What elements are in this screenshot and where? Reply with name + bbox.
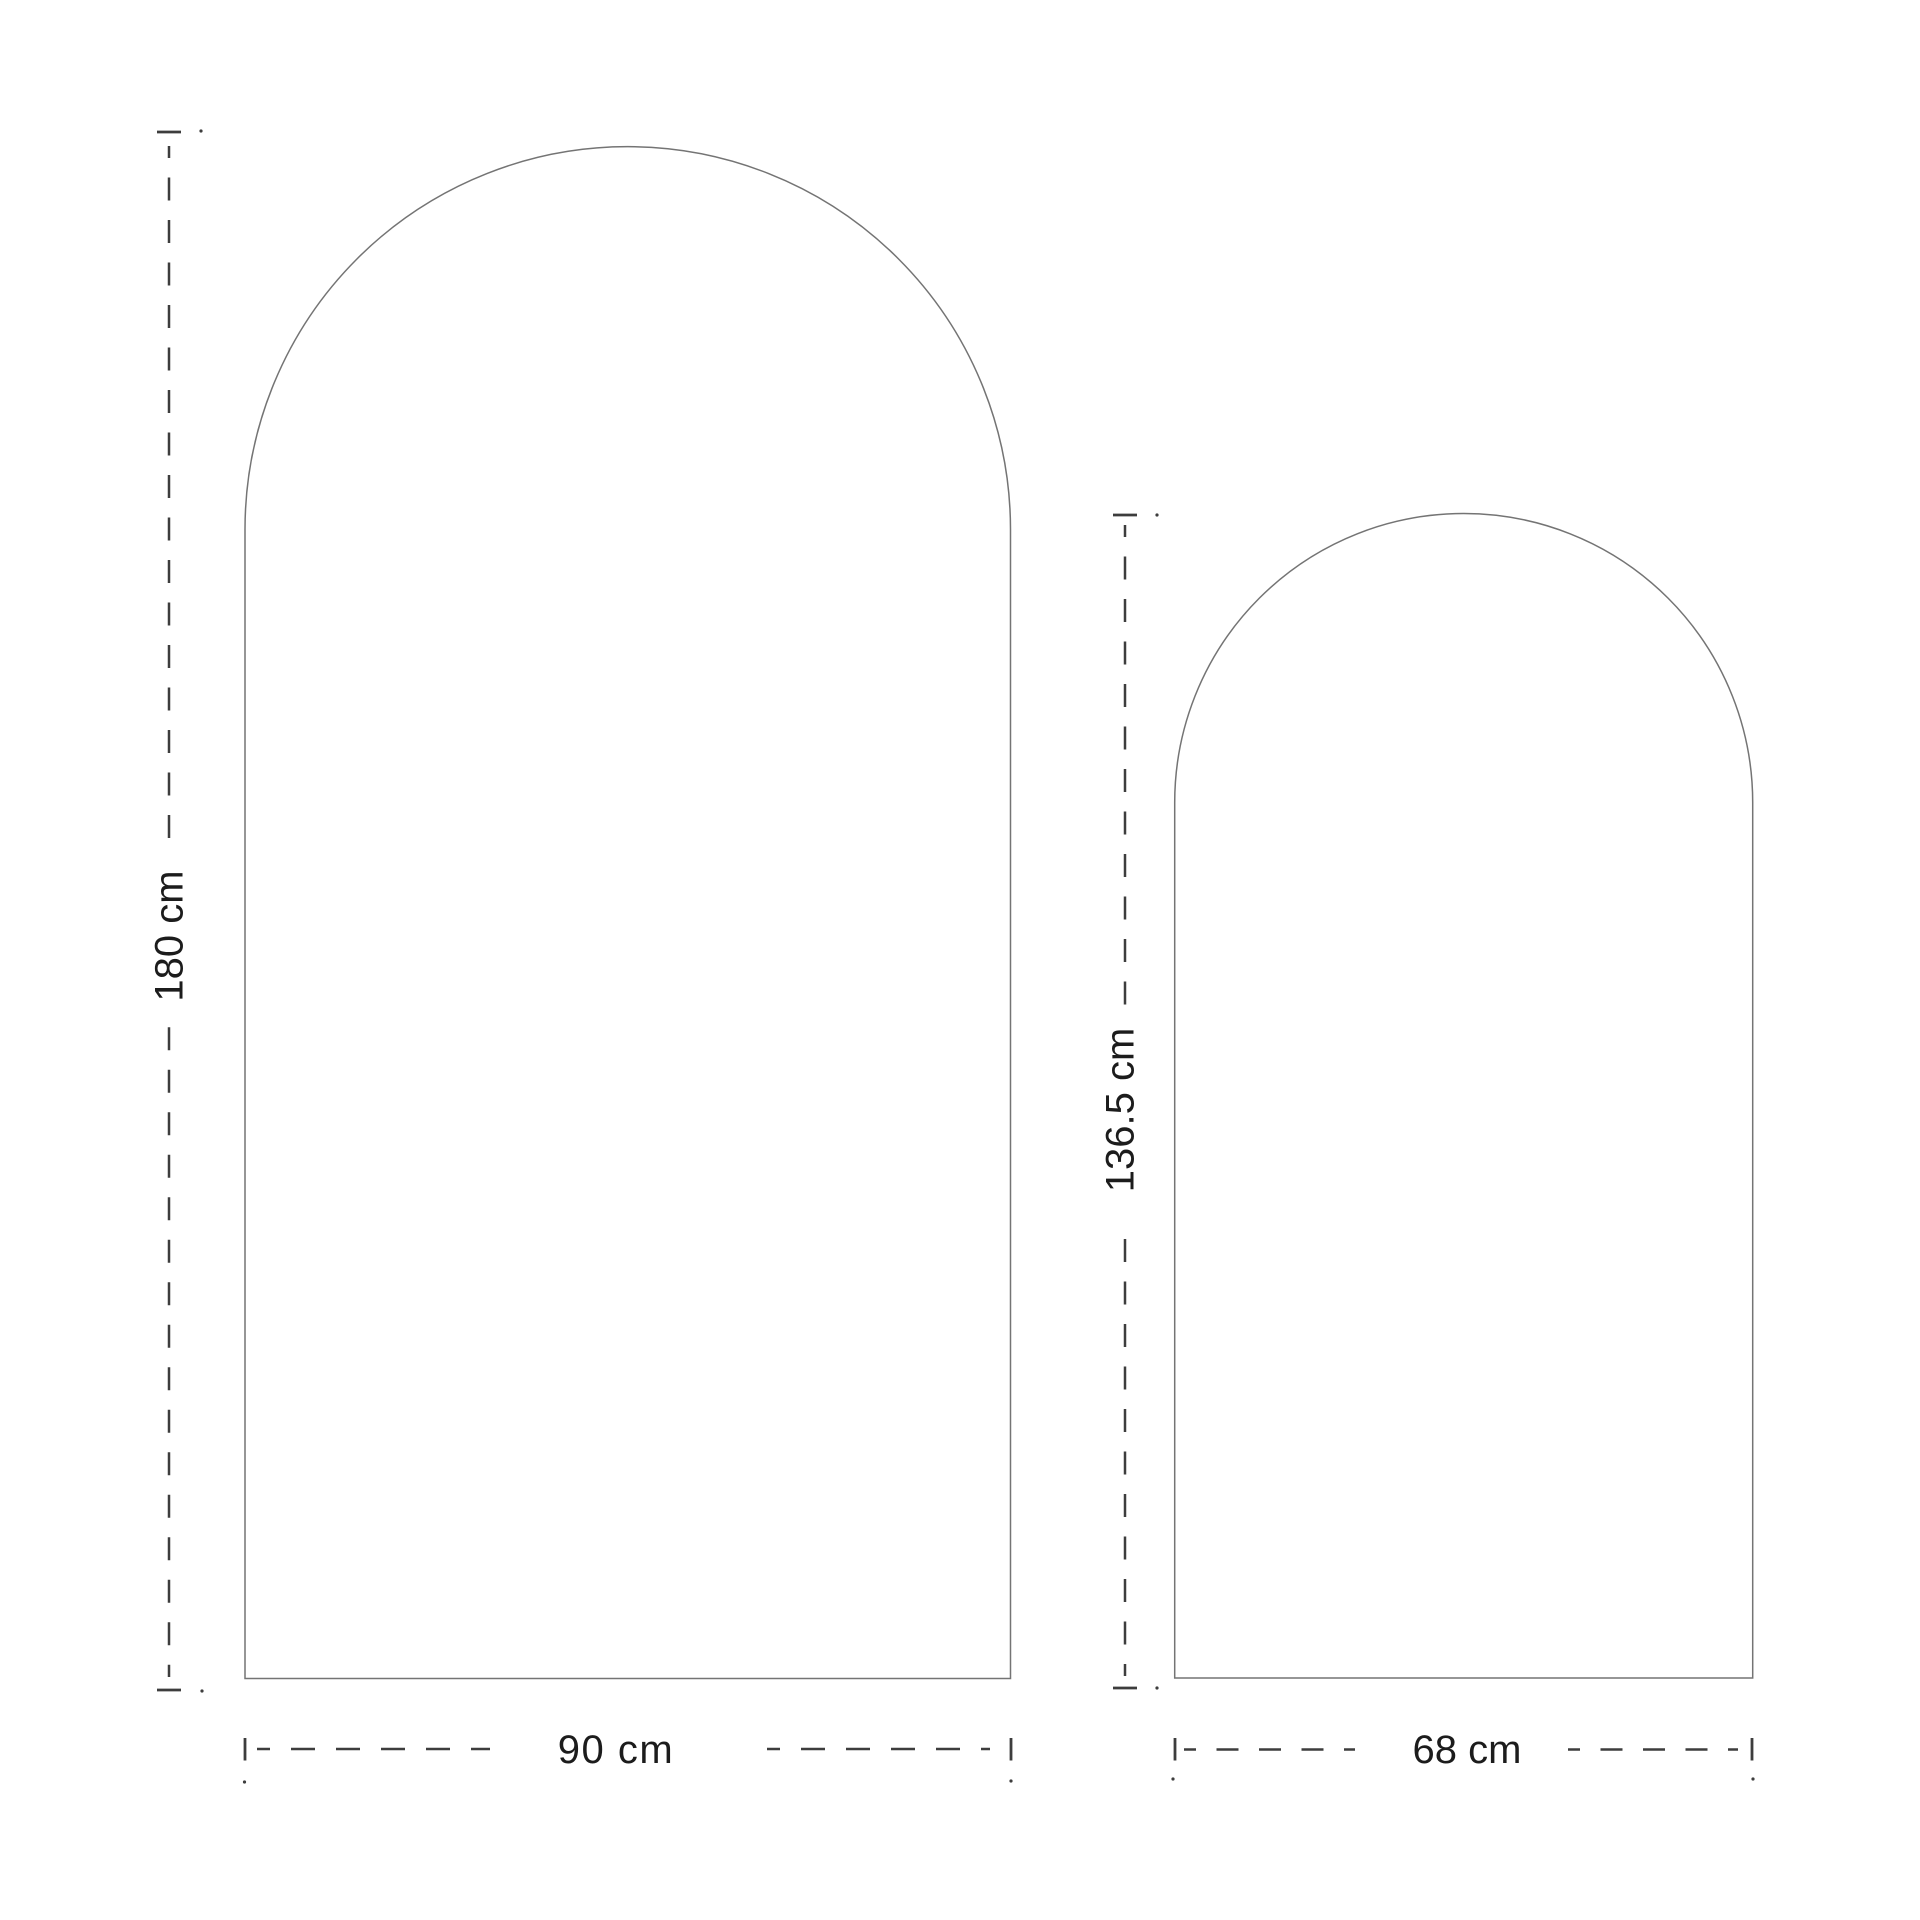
svg-text:180 cm: 180 cm (148, 870, 192, 1001)
svg-text:136.5 cm: 136.5 cm (1099, 1028, 1143, 1193)
svg-text:68 cm: 68 cm (1413, 1728, 1522, 1772)
svg-text:90 cm: 90 cm (558, 1728, 674, 1772)
